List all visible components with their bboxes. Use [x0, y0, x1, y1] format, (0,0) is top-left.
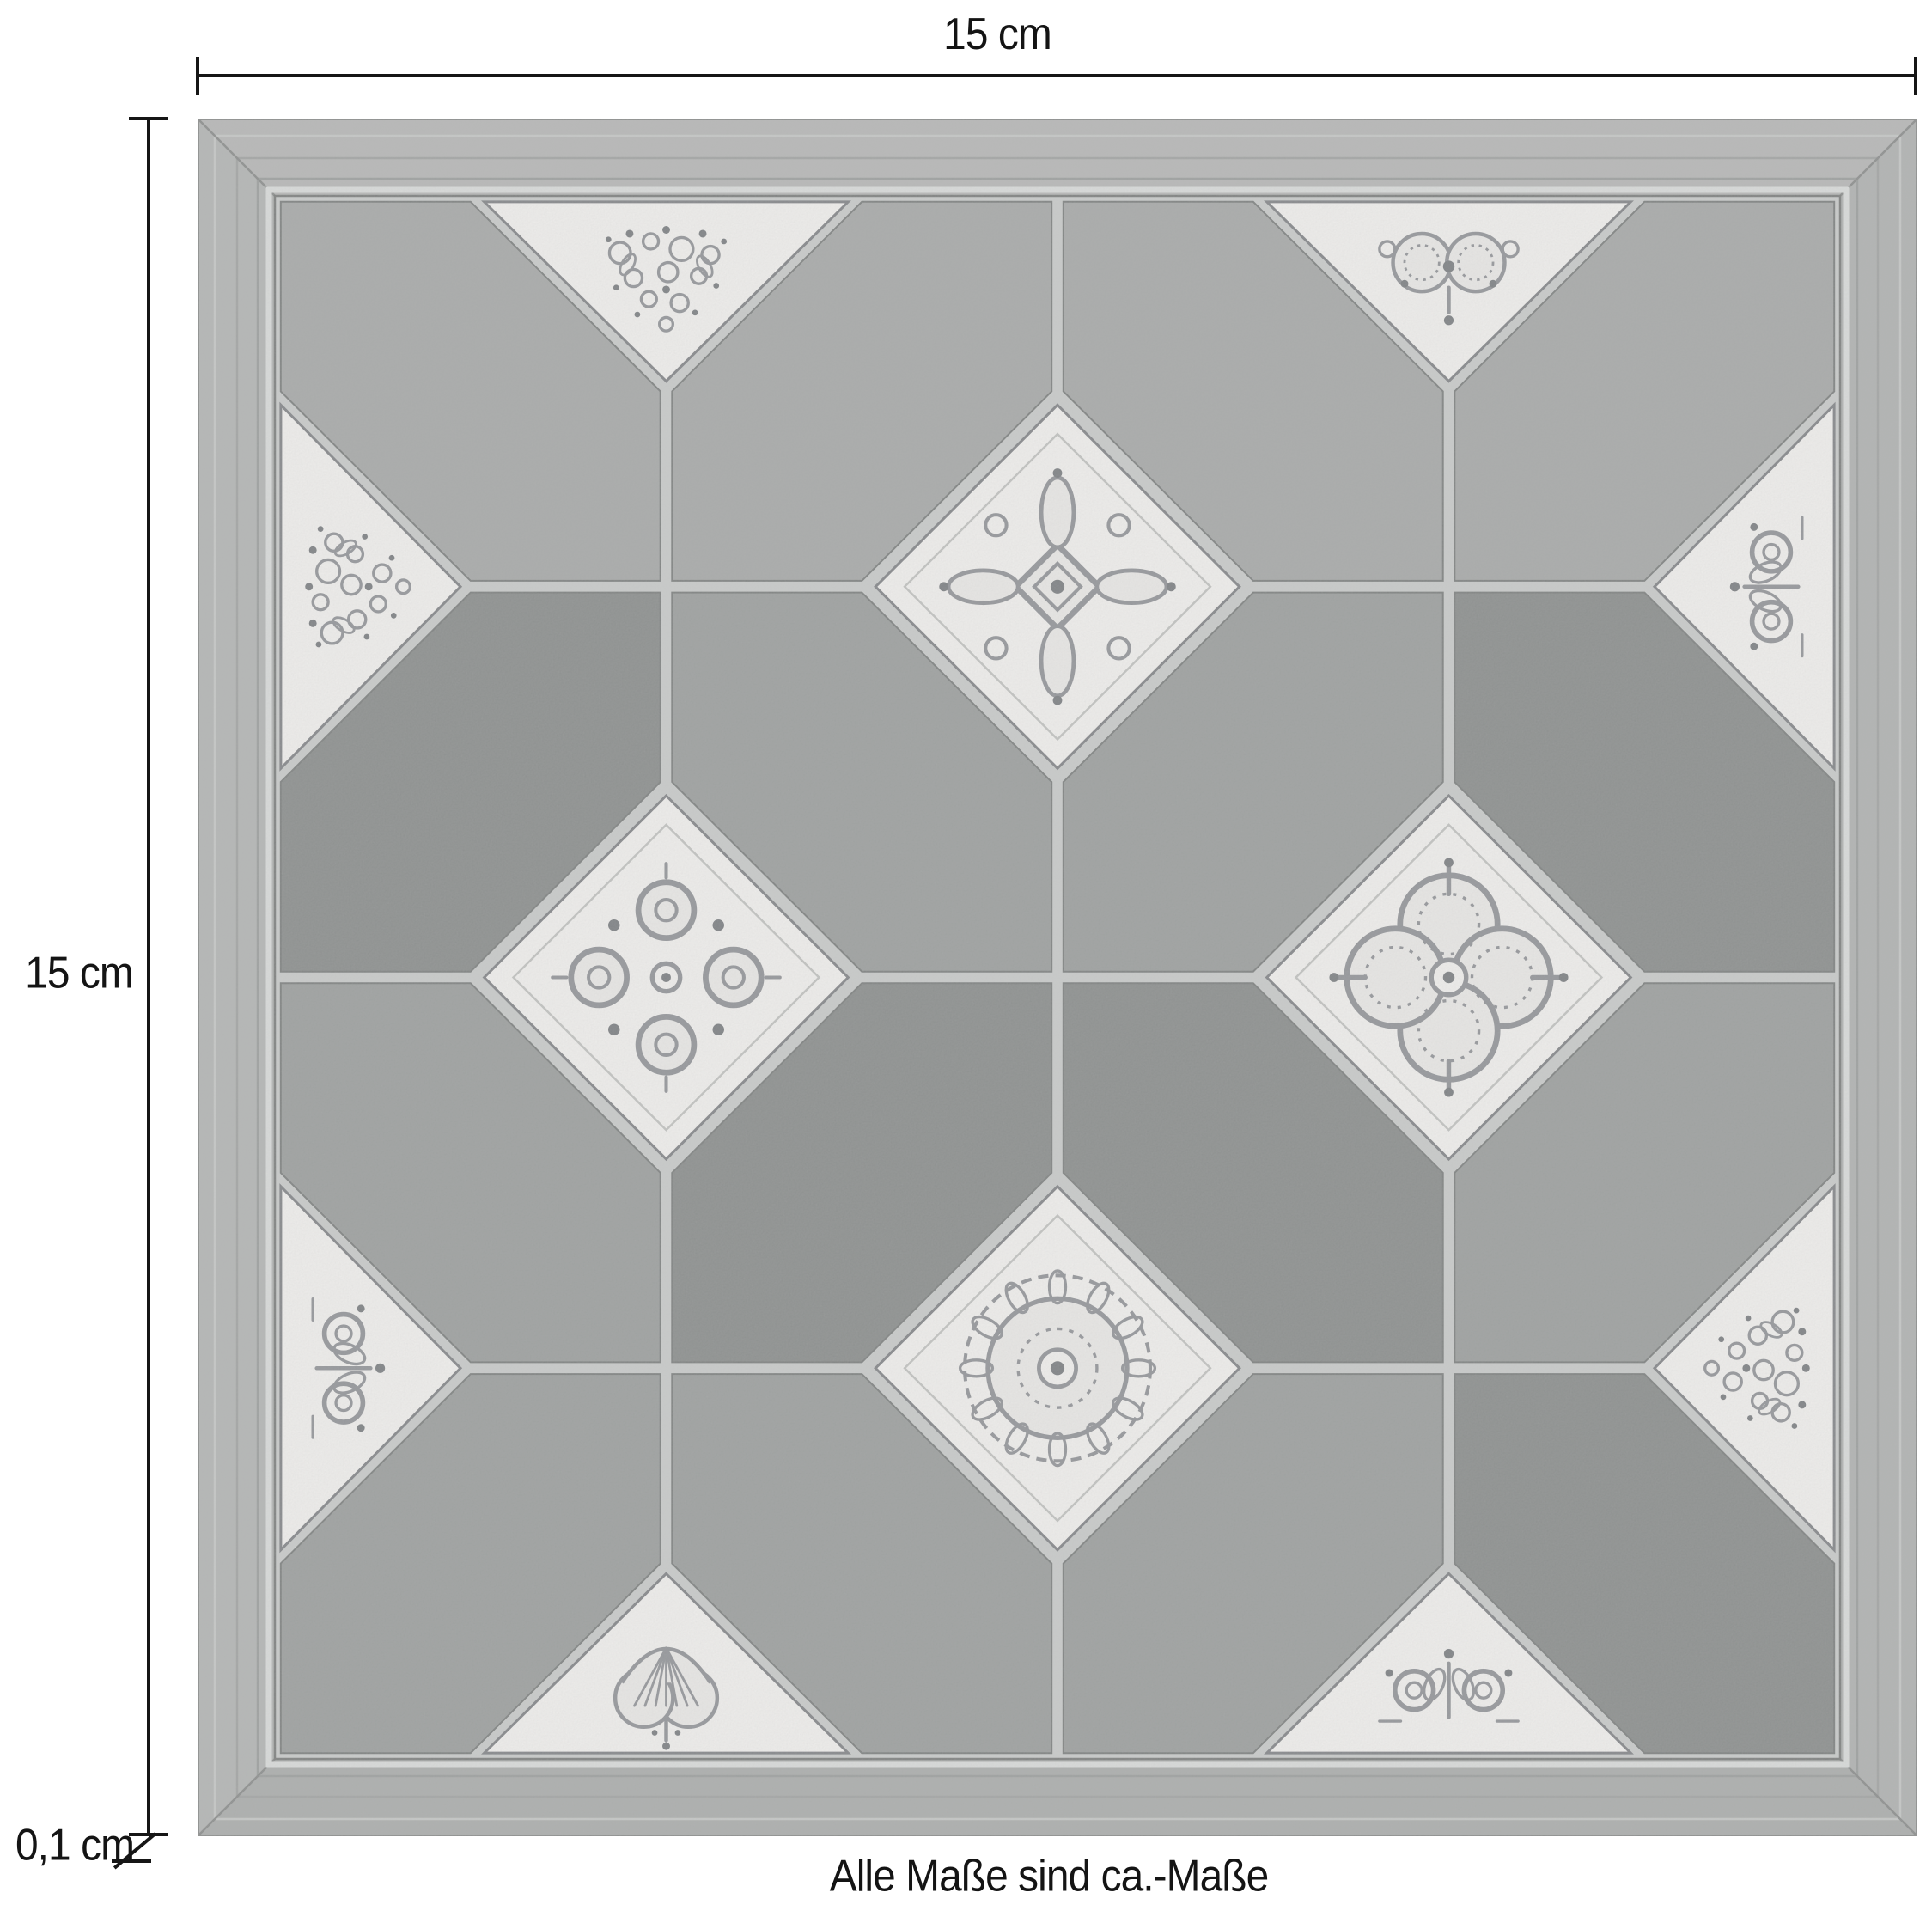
height-dimension-line — [147, 119, 150, 1836]
tile-product-image — [198, 119, 1917, 1836]
height-dimension-tick-top — [129, 117, 168, 120]
tile-texture-grain — [198, 119, 1917, 1836]
width-dimension-tick-left — [196, 57, 199, 95]
width-dimension-line — [198, 74, 1917, 77]
thickness-dimension-label: 0,1 cm — [15, 1821, 134, 1870]
height-dimension-label: 15 cm — [25, 949, 133, 998]
width-dimension-tick-right — [1914, 57, 1917, 95]
width-dimension-label: 15 cm — [943, 10, 1051, 59]
measurements-footnote: Alle Maße sind ca.-Maße — [830, 1852, 1269, 1901]
tile-dimension-diagram: 15 cm 15 cm 0,1 cm Alle Maße sind ca.-Ma… — [0, 0, 1932, 1917]
